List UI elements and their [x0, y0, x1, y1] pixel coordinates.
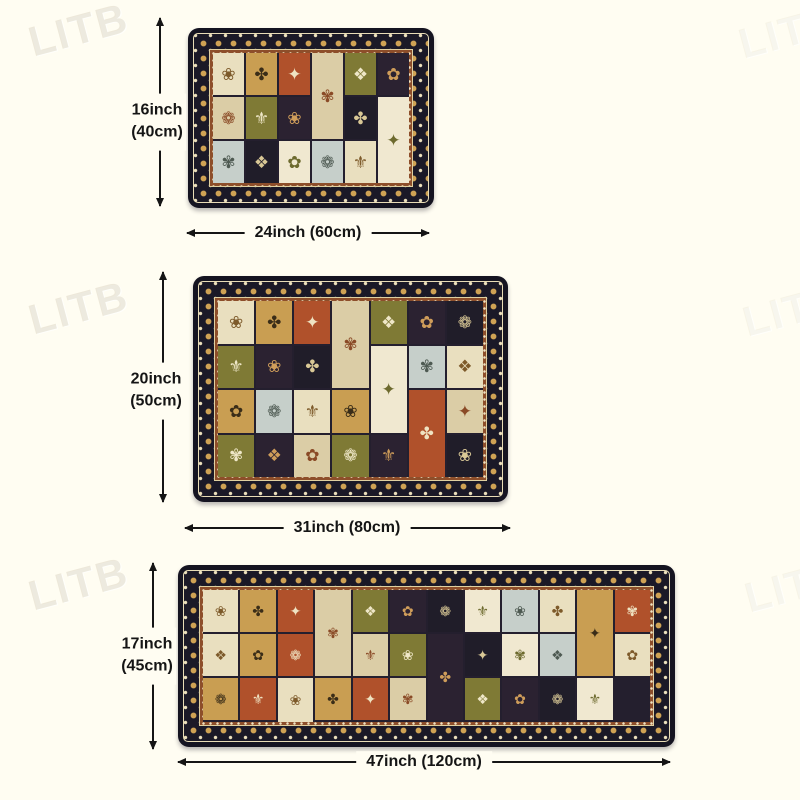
rug-tile: ❀ — [256, 346, 292, 389]
rug-tile: ❀ — [278, 678, 313, 722]
rug-photo-small: ❀✤✦✾❖✿❁⚜❀✤✦✾❖✿❁⚜ — [188, 28, 434, 208]
width-label-small: 24inch (60cm) — [245, 222, 372, 244]
watermark-litb: LITB — [740, 550, 800, 623]
height-inches: 17inch — [121, 634, 173, 656]
rug-tile: ✦ — [278, 590, 313, 632]
rug-tile: ✤ — [315, 678, 350, 720]
rug-tile: ❀ — [213, 53, 244, 95]
rug-tile: ✾ — [332, 301, 368, 388]
rug-tile: ✦ — [465, 634, 500, 676]
rug-tile: ❀ — [279, 97, 310, 139]
rug-tile: ❖ — [246, 141, 277, 183]
rug-tile: ⚜ — [218, 346, 254, 389]
height-label-small: 16inch (40cm) — [128, 94, 186, 151]
rug-tile: ⚜ — [345, 141, 376, 183]
rug-guard-border: ❀✤✦✾❖✿❁⚜❀✤✦✾❖✿❁⚜❀✤✦✾❖✿❁⚜❀ — [214, 297, 487, 481]
rug-edge: ❀✤✦✾❖✿❁⚜❀✤✦✾❖✿❁⚜❀✤✦✾❖✿❁⚜❀ — [193, 276, 508, 502]
rug-tile: ⚜ — [577, 678, 612, 720]
rug-ornament-border: ❀✤✦✾❖✿❁⚜❀✤✦✾❖✿❁⚜❀✤✦✾❖✿❁⚜❀✤✦✾❖✿❁⚜ — [183, 570, 670, 742]
rug-tile: ❁ — [213, 97, 244, 139]
watermark-litb: LITB — [24, 0, 134, 66]
rug-edge: ❀✤✦✾❖✿❁⚜❀✤✦✾❖✿❁⚜❀✤✦✾❖✿❁⚜❀✤✦✾❖✿❁⚜ — [178, 565, 675, 747]
rug-tile: ❀ — [203, 590, 238, 632]
rug-tile: ✦ — [294, 301, 330, 344]
rug-tile: ❁ — [332, 435, 368, 478]
rug-tile: ❖ — [353, 590, 388, 632]
rug-tile: ❖ — [540, 634, 575, 676]
watermark-litb: LITB — [24, 272, 134, 345]
rug-tile: ❖ — [465, 678, 500, 720]
rug-tile: ❖ — [203, 634, 238, 676]
rug-tile: ✿ — [240, 634, 275, 676]
rug-tile: ⚜ — [294, 390, 330, 433]
rug-ornament-border: ❀✤✦✾❖✿❁⚜❀✤✦✾❖✿❁⚜ — [193, 33, 429, 203]
rug-guard-border: ❀✤✦✾❖✿❁⚜❀✤✦✾❖✿❁⚜ — [209, 49, 413, 187]
rug-tile: ❁ — [278, 634, 313, 676]
rug-tile: ✾ — [312, 53, 343, 139]
watermark-litb: LITB — [734, 0, 800, 68]
rug-tile: ✾ — [315, 590, 350, 676]
height-cm: (40cm) — [131, 122, 183, 144]
rug-tile: ❁ — [428, 590, 463, 632]
rug-tile: ❁ — [447, 301, 483, 344]
rug-tile: ✦ — [577, 590, 612, 676]
rug-edge: ❀✤✦✾❖✿❁⚜❀✤✦✾❖✿❁⚜ — [188, 28, 434, 208]
watermark-litb: LITB — [24, 548, 134, 621]
rug-tile: ⚜ — [246, 97, 277, 139]
rug-tile: ✤ — [240, 590, 275, 632]
rug-tile: ❀ — [447, 435, 483, 478]
rug-tile: ❁ — [203, 678, 238, 720]
height-inches: 16inch — [131, 100, 183, 122]
rug-tile: ❁ — [312, 141, 343, 183]
height-inches: 20inch — [130, 369, 182, 391]
rug-tile: ✿ — [615, 634, 650, 676]
rug-tile: ✾ — [213, 141, 244, 183]
rug-tile: ✤ — [246, 53, 277, 95]
height-cm: (45cm) — [121, 656, 173, 678]
rug-tile: ❀ — [332, 390, 368, 433]
rug-tile: ⚜ — [240, 678, 275, 720]
rug-ornament-border: ❀✤✦✾❖✿❁⚜❀✤✦✾❖✿❁⚜❀✤✦✾❖✿❁⚜❀ — [198, 281, 503, 497]
rug-guard-border: ❀✤✦✾❖✿❁⚜❀✤✦✾❖✿❁⚜❀✤✦✾❖✿❁⚜❀✤✦✾❖✿❁⚜ — [199, 586, 654, 726]
rug-tile: ✾ — [615, 590, 650, 632]
rug-tile: ✿ — [409, 301, 445, 344]
rug-patchwork-field: ❀✤✦✾❖✿❁⚜❀✤✦✾❖✿❁⚜ — [213, 53, 409, 183]
rug-tile: ✾ — [218, 435, 254, 478]
rug-tile: ✿ — [294, 435, 330, 478]
width-label-runner: 47inch (120cm) — [356, 751, 492, 773]
rug-tile: ✾ — [409, 346, 445, 389]
height-label-runner: 17inch (45cm) — [118, 628, 176, 685]
rug-tile: ✾ — [502, 634, 537, 676]
rug-tile: ❀ — [218, 301, 254, 344]
rug-tile: ✿ — [390, 590, 425, 632]
rug-tile: ✦ — [371, 346, 407, 433]
rug-tile: ✦ — [378, 97, 409, 183]
rug-tile: ✤ — [256, 301, 292, 344]
width-label-medium: 31inch (80cm) — [284, 517, 411, 539]
rug-tile: ✾ — [390, 678, 425, 720]
rug-tile: ❀ — [390, 634, 425, 676]
rug-tile: ✤ — [409, 390, 445, 477]
rug-tile: ✿ — [378, 53, 409, 95]
rug-tile: ✤ — [540, 590, 575, 632]
rug-photo-runner: ❀✤✦✾❖✿❁⚜❀✤✦✾❖✿❁⚜❀✤✦✾❖✿❁⚜❀✤✦✾❖✿❁⚜ — [178, 565, 675, 747]
rug-patchwork-field: ❀✤✦✾❖✿❁⚜❀✤✦✾❖✿❁⚜❀✤✦✾❖✿❁⚜❀ — [218, 301, 483, 477]
rug-patchwork-field: ❀✤✦✾❖✿❁⚜❀✤✦✾❖✿❁⚜❀✤✦✾❖✿❁⚜❀✤✦✾❖✿❁⚜ — [203, 590, 650, 722]
rug-tile: ❁ — [256, 390, 292, 433]
rug-tile: ✿ — [218, 390, 254, 433]
rug-tile: ✦ — [353, 678, 388, 720]
height-cm: (50cm) — [130, 391, 182, 413]
rug-tile: ❀ — [502, 590, 537, 632]
rug-tile: ✦ — [447, 390, 483, 433]
rug-tile: ⚜ — [371, 435, 407, 478]
rug-tile: ❖ — [256, 435, 292, 478]
watermark-litb: LITB — [738, 274, 800, 347]
rug-tile: ✤ — [345, 97, 376, 139]
rug-tile: ⚜ — [465, 590, 500, 632]
rug-tile: ⚜ — [353, 634, 388, 676]
rug-tile: ❁ — [540, 678, 575, 720]
rug-tile: ✤ — [294, 346, 330, 389]
rug-tile: ❖ — [345, 53, 376, 95]
rug-tile: ❖ — [371, 301, 407, 344]
rug-photo-medium: ❀✤✦✾❖✿❁⚜❀✤✦✾❖✿❁⚜❀✤✦✾❖✿❁⚜❀ — [193, 276, 508, 502]
height-label-medium: 20inch (50cm) — [127, 363, 185, 420]
rug-tile: ✦ — [279, 53, 310, 95]
product-size-chart: LITB LITB LITB LITB LITB LITB ❀✤✦✾❖✿❁⚜❀✤… — [0, 0, 800, 800]
rug-tile: ❖ — [447, 346, 483, 389]
rug-tile: ✿ — [502, 678, 537, 720]
rug-tile: ✿ — [279, 141, 310, 183]
rug-tile: ✤ — [428, 634, 463, 720]
